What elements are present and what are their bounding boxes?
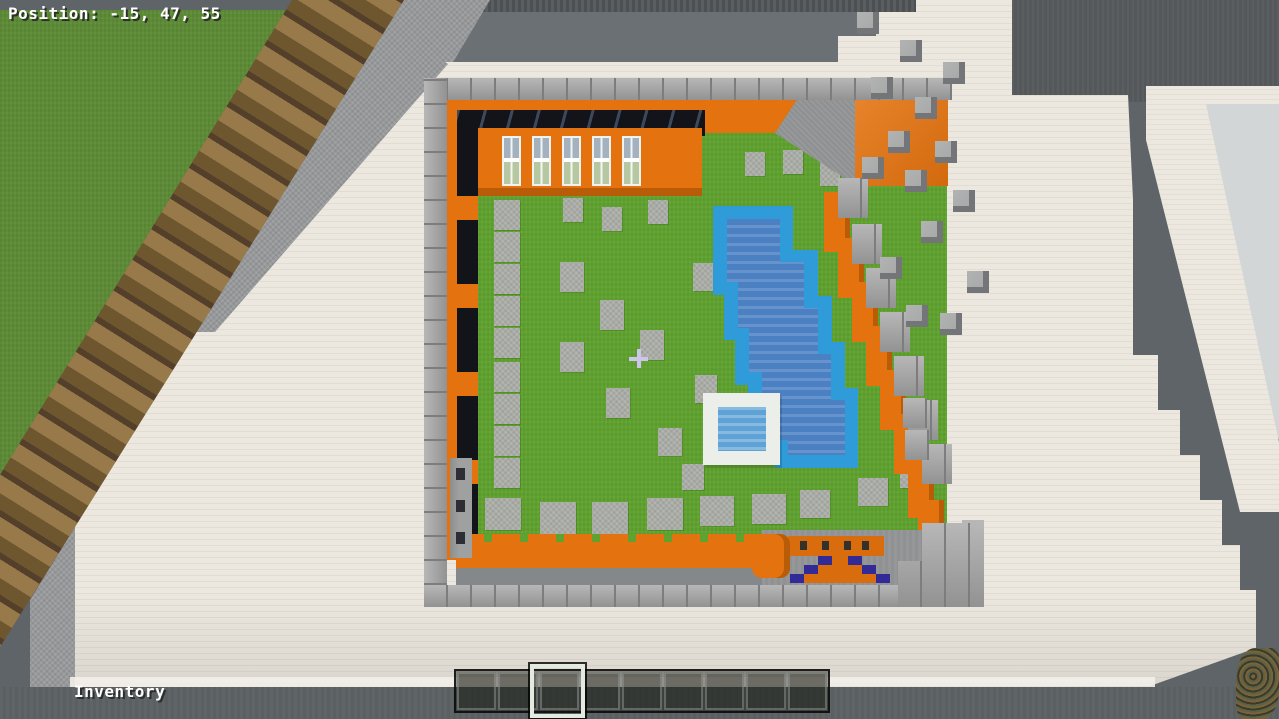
path-tile xyxy=(700,496,734,526)
path-tile xyxy=(560,342,584,372)
wall-step-brick xyxy=(852,224,882,264)
path-tile xyxy=(592,502,628,534)
tree-bottom-right xyxy=(1236,648,1279,719)
path-tile xyxy=(494,362,520,392)
path-tile xyxy=(494,394,520,424)
arrow-blue-block xyxy=(804,565,818,574)
path-tile xyxy=(647,498,683,530)
path-tile xyxy=(563,198,583,222)
item-frame-mark xyxy=(456,500,465,512)
hotbar-selection xyxy=(530,664,585,718)
game-viewport[interactable]: Position: -15, 47, 55 Inventory xyxy=(0,0,1279,719)
path-tile xyxy=(783,150,803,174)
south-wall-orange xyxy=(456,534,762,568)
orange-wall-top-lip xyxy=(447,100,712,110)
window xyxy=(502,136,521,186)
orange-rug xyxy=(788,536,884,556)
path-tile xyxy=(745,152,765,176)
path-tile xyxy=(494,232,520,262)
wall-step-brick xyxy=(894,356,924,396)
hotbar-slot-1[interactable] xyxy=(457,672,496,710)
path-tile xyxy=(693,263,715,291)
window xyxy=(622,136,641,186)
rug-mark xyxy=(822,541,829,550)
stone-cube xyxy=(880,257,902,279)
item-frame-mark xyxy=(456,468,465,480)
path-tile xyxy=(800,490,830,518)
arrow-orange-block xyxy=(818,565,862,574)
position-text: Position: -15, 47, 55 xyxy=(8,4,221,23)
window xyxy=(592,136,611,186)
crosshair-vertical-bar xyxy=(637,349,641,368)
stone-cube xyxy=(857,12,879,34)
path-tile xyxy=(494,264,520,294)
orange-pillar xyxy=(752,534,790,578)
wall-base-brick xyxy=(903,398,927,428)
path-tile xyxy=(606,388,630,418)
hotbar[interactable] xyxy=(454,669,830,713)
stone-cube xyxy=(906,305,928,327)
stone-cube xyxy=(871,77,893,99)
arrow-blue-block xyxy=(818,556,832,565)
hotbar-slot-7[interactable] xyxy=(705,672,744,710)
window xyxy=(532,136,551,186)
inventory-label: Inventory xyxy=(74,682,165,701)
arrow-blue-block xyxy=(848,556,862,565)
stone-cube xyxy=(921,221,943,243)
hotbar-slot-8[interactable] xyxy=(746,672,785,710)
wall-base-brick xyxy=(905,430,929,460)
stone-cube xyxy=(900,40,922,62)
arrow-blue-block xyxy=(862,565,876,574)
rug-mark xyxy=(800,541,807,550)
hotbar-slot-6[interactable] xyxy=(664,672,703,710)
path-tile xyxy=(560,262,584,292)
stone-cube xyxy=(943,62,965,84)
window xyxy=(562,136,581,186)
stone-cube xyxy=(935,141,957,163)
wall-step-brick xyxy=(838,178,868,218)
stone-cube xyxy=(940,313,962,335)
gray-pillar-frames xyxy=(450,458,472,558)
rug-mark xyxy=(844,541,851,550)
stone-cube xyxy=(953,190,975,212)
path-tile xyxy=(658,428,682,456)
path-tile xyxy=(494,458,520,488)
item-frame-mark xyxy=(456,532,465,544)
orange-window-wall xyxy=(478,128,702,196)
arrow-orange-block xyxy=(804,574,876,583)
hotbar-slot-9[interactable] xyxy=(788,672,827,710)
path-tile xyxy=(494,200,520,230)
arrow-orange-block xyxy=(832,556,848,565)
crosshair-icon xyxy=(629,349,648,368)
arrow-blue-block xyxy=(876,574,890,583)
stone-cube xyxy=(862,157,884,179)
path-tile xyxy=(540,502,576,534)
stone-brick-frame-left xyxy=(424,78,447,607)
path-tile xyxy=(858,478,888,506)
stone-cube xyxy=(967,271,989,293)
arrow-blue-block xyxy=(790,574,804,583)
path-tile xyxy=(648,200,668,224)
rug-mark xyxy=(862,541,869,550)
small-pool-water xyxy=(718,407,766,451)
stone-cube xyxy=(905,170,927,192)
path-tile xyxy=(494,296,520,326)
path-tile xyxy=(600,300,624,330)
path-tile xyxy=(602,207,622,231)
path-tile xyxy=(494,328,520,358)
stone-cube xyxy=(915,97,937,119)
path-tile xyxy=(752,494,786,524)
hotbar-slot-5[interactable] xyxy=(622,672,661,710)
stone-cube xyxy=(888,131,910,153)
path-tile xyxy=(494,426,520,456)
path-tile xyxy=(682,464,704,490)
hotbar-slot-4[interactable] xyxy=(581,672,620,710)
path-tile xyxy=(485,498,521,530)
